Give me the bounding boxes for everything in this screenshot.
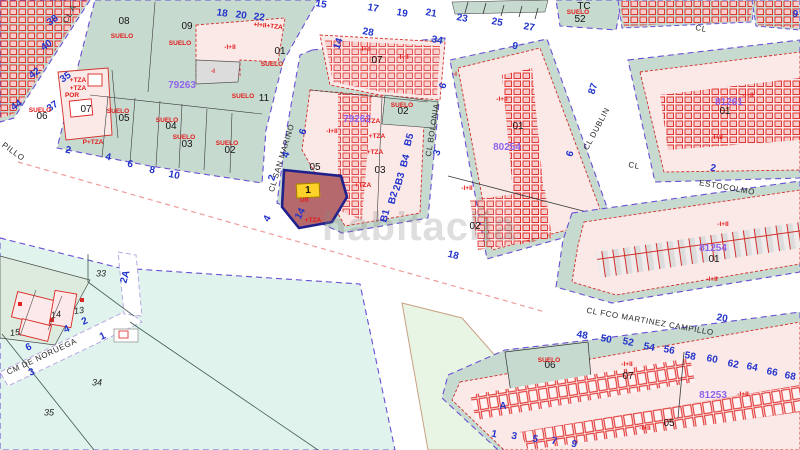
parcel-number: 08 [118, 17, 129, 27]
street-number: 34 [431, 35, 444, 47]
street-number: 19 [396, 8, 409, 20]
street-number: 15 [315, 0, 328, 11]
street-number: 2 [709, 164, 716, 175]
red-label: +TZA [70, 78, 86, 85]
parcel-number-italic: 14 [50, 310, 61, 320]
red-label: -I+II [359, 47, 370, 54]
cadastral-block-number: 80254 [493, 143, 521, 153]
parcel-number-italic: 13 [73, 306, 84, 316]
street-number: 20 [235, 10, 247, 21]
red-label: P+TZA [83, 140, 104, 147]
red-label: SUELO [29, 108, 51, 115]
parcel-number: 03 [181, 140, 192, 150]
parcel-number: 07 [622, 372, 633, 382]
street-number: 20 [716, 313, 729, 325]
street-number: 50 [600, 334, 613, 346]
red-label: SUELO [232, 94, 254, 101]
red-label: SUELO [173, 135, 195, 142]
red-label: SUELO [261, 62, 283, 69]
street-number: 25 [491, 17, 504, 29]
building-79263-gray [196, 60, 240, 84]
parcel-number: 09 [181, 22, 192, 32]
street-number: 28 [362, 27, 375, 39]
red-label: -I+II [639, 426, 650, 433]
parcel-number: 52 [574, 15, 585, 25]
cadastral-block-number: 81253 [699, 391, 727, 401]
house [88, 74, 102, 86]
red-label: SUELO [216, 141, 238, 148]
red-label: SUELO [156, 118, 178, 125]
street-number: 56 [663, 345, 676, 357]
red-label: -I+II [224, 45, 235, 52]
parcel-number: 05 [663, 419, 674, 429]
highlight-ur-label: UR [300, 198, 309, 204]
red-label: -I+II [496, 97, 507, 104]
street-number: 27 [523, 22, 536, 34]
cadastral-block-number: 79263 [168, 81, 196, 91]
cadastral-block-number: 79262 [343, 115, 371, 125]
highlighted-parcel-tag[interactable]: 1 [296, 182, 321, 198]
parcel-number: 01 [708, 255, 719, 265]
red-label: -I+II [737, 392, 748, 399]
house-dot [18, 302, 22, 306]
red-label: -I+II [461, 186, 472, 193]
parcel-number: 07 [371, 56, 382, 66]
street-number: 10 [168, 170, 181, 182]
red-label: SUELO [391, 103, 413, 110]
cadastral-block-number: 81254 [699, 244, 727, 254]
street-number: 66 [766, 367, 779, 379]
parcel-number: 11 [259, 94, 269, 104]
parcel-number: 02 [469, 222, 480, 232]
red-label: -I+II [397, 55, 408, 62]
red-label: -I+II [711, 135, 722, 142]
parcel-number-italic: 15 [9, 328, 20, 338]
parcel-number-italic: 35 [44, 409, 54, 418]
red-label: -I [211, 69, 215, 76]
red-label: SUELO [567, 10, 589, 17]
cadastral-block-number: 81261 [715, 98, 743, 108]
red-label: -I+II [717, 222, 728, 229]
red-label: -I+II [621, 362, 632, 369]
red-label: -I+II [742, 93, 753, 100]
parcel-number: 01 [512, 122, 523, 132]
highlight-number: 1 [305, 185, 311, 196]
street-number: 64 [746, 362, 759, 374]
street-number: 62 [727, 359, 740, 371]
red-label: +TZA [369, 134, 385, 141]
red-label: +TZA [367, 150, 383, 157]
parcel-number: 02 [224, 146, 235, 156]
red-label: -I+II [326, 129, 337, 136]
street-number: 9 [511, 42, 518, 53]
parcel-number-italic: 34 [92, 379, 102, 388]
street-number: 58 [684, 351, 697, 363]
street-number: 17 [367, 3, 380, 15]
street-number: 60 [706, 354, 719, 366]
street-number: 68 [784, 371, 797, 383]
parcel-number: 01 [274, 47, 285, 57]
parcel-number-italic: 33 [96, 270, 106, 279]
parcel-number: 05 [118, 114, 129, 124]
street-number: 23 [456, 13, 469, 25]
parcel-number: 07 [80, 105, 91, 115]
cadastral-map: habitaclia CL APILLOCL SAN MARINOCL BOLO… [0, 0, 800, 450]
street-number: A [499, 402, 506, 412]
red-label: -I+II [706, 277, 717, 284]
street-name: CL [628, 161, 641, 171]
red-label: POR [65, 93, 79, 100]
street-number: 48 [576, 330, 589, 342]
parcel-number: 03 [374, 166, 385, 176]
street-number: 21 [425, 8, 438, 20]
watermark: habitaclia [322, 205, 517, 250]
red-label: SUELO [538, 358, 560, 365]
street-number: 54 [643, 342, 656, 354]
parcel-number: 01 [719, 107, 730, 117]
parcel-number: 05 [309, 163, 320, 173]
street-number: 52 [622, 337, 635, 349]
red-label: SUELO [111, 34, 133, 41]
red-label: +TZA [305, 218, 321, 225]
street-number: 18 [216, 8, 228, 19]
red-label: SUELO [107, 109, 129, 116]
red-label: -I [453, 72, 457, 79]
red-label: SUELO [169, 41, 191, 48]
house-dot [80, 298, 84, 302]
red-label: +TZA [355, 183, 371, 190]
